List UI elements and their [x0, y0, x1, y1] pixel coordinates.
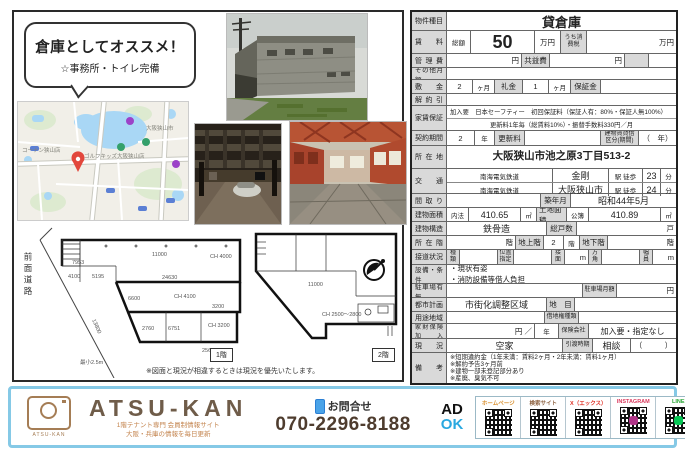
- shikikin-value: 2: [446, 80, 472, 93]
- row-label: 建物面積: [412, 208, 446, 221]
- table-row: 用途地域 借地権種類: [412, 311, 676, 323]
- hougaku-label: 方角: [588, 250, 601, 264]
- ad-label: AD: [441, 402, 463, 417]
- camera-icon: [27, 396, 71, 430]
- row-label: その他月額: [412, 68, 446, 79]
- svg-text:13800: 13800: [90, 318, 102, 334]
- property-type-value: 貸倉庫: [446, 12, 676, 30]
- bubble-subline: ☆事務所・トイレ完備: [61, 60, 160, 75]
- svg-text:11000: 11000: [152, 252, 167, 258]
- table-row: 交通 南海電気鉄道 金剛 駅 徒歩 23 分 南海電気鉄道 大阪狭山市 駅 徒歩…: [412, 168, 676, 193]
- recommend-bubble: 倉庫としてオススメ！ ☆事務所・トイレ完備: [24, 22, 196, 88]
- interior-photo-2f: [290, 122, 406, 224]
- setsubi-line2: ・消防設備等借人負担: [450, 274, 525, 283]
- row-label: 接道状況: [412, 250, 446, 264]
- kazai-unit: 円 ／: [446, 324, 534, 338]
- ad-ok-block: AD OK: [441, 402, 464, 432]
- bikou-line: ※短期違約金（1年未満：賃料2ヶ月・2年未満：賃料1ヶ月）: [450, 354, 620, 361]
- area-unit: ㎡: [520, 208, 536, 221]
- svg-text:5195: 5195: [92, 274, 104, 280]
- exterior-photo: [227, 14, 367, 120]
- ok-label: OK: [441, 417, 464, 432]
- brand-tagline-2: 大阪・兵庫の情報を毎日更新: [126, 431, 211, 439]
- floor-plans: 7953 11000 CH 4000 24630 4100 5195 6600 …: [16, 226, 402, 378]
- svg-text:CH 4100: CH 4100: [174, 294, 196, 300]
- map-label: コーナン狭山店: [22, 146, 61, 154]
- table-row: 設備・条件 ・現状有姿 ・消防設備等借人負担: [412, 264, 676, 283]
- floor-unit: 階: [563, 236, 579, 249]
- setsubi-line1: ・現状有姿: [450, 265, 488, 274]
- empty-cell: [601, 250, 639, 264]
- svg-text:7953: 7953: [72, 260, 84, 266]
- plan-note: ※図面と現況が相違するときは現況を優先いたします。: [146, 366, 319, 376]
- rent-amount: 50: [470, 31, 534, 53]
- svg-text:最小2.5m: 最小2.5m: [80, 358, 104, 366]
- svg-text:CH 3200: CH 3200: [208, 323, 230, 329]
- soukosu-unit: 戸: [576, 222, 676, 235]
- qr-label: INSTAGRAM: [617, 399, 650, 405]
- map-label: 大阪狭山市: [146, 124, 174, 132]
- parking-monthly-label: 駐車場月額: [582, 284, 616, 297]
- kyoueki-unit: 円: [549, 54, 624, 67]
- soukosu-label: 総戸数: [546, 222, 576, 235]
- qr-code: [485, 409, 512, 436]
- hikiwatashi-value: 相談: [592, 339, 630, 352]
- setsumen-label: 接面: [551, 250, 564, 264]
- svg-text:2760: 2760: [142, 326, 154, 332]
- shakuchi-label: 借地権種類: [544, 312, 578, 323]
- table-row: 賃料 総額 50 万円 うち消費税 万円: [412, 30, 676, 53]
- land-area-label: 土地面積: [536, 208, 566, 221]
- row-label: 管理費: [412, 54, 446, 67]
- table-row: 接道状況 種類 位置指定 接面 m 方角 幅員 m: [412, 249, 676, 264]
- row-label: 敷金: [412, 80, 446, 93]
- qr-code: [665, 407, 685, 434]
- row-label: 所在地: [412, 146, 446, 168]
- empty-cell: [446, 284, 582, 297]
- kubun-label: 建物賃貸借区分(期間): [600, 131, 638, 145]
- svg-text:24630: 24630: [162, 275, 177, 281]
- chijou-label: 地上階: [515, 236, 543, 249]
- flyer-page: 倉庫としてオススメ！ ☆事務所・トイレ完備: [0, 0, 685, 450]
- qr-item-x: X（エックス）: [565, 397, 610, 438]
- floor-unit: 階: [446, 236, 515, 249]
- chika-label: 地下階: [579, 236, 607, 249]
- table-row: 都市計画 市街化調整区域 地 目: [412, 297, 676, 311]
- hoshoukin-label: 保証金: [570, 80, 600, 93]
- brand-name: ATSU-KAN: [89, 395, 247, 422]
- row-label: 用途地域: [412, 312, 446, 323]
- row-label: 現況: [412, 339, 446, 352]
- table-row: 家賃保証 加入要 日本セーフティー 初回保証料（保証人有：80%・保証人無100…: [412, 105, 676, 130]
- keiyaku-value: 2: [446, 131, 474, 145]
- compass-icon: [364, 259, 385, 280]
- empty-cell: [459, 250, 497, 264]
- ichi-label: 位置指定: [497, 250, 513, 264]
- row-label: 家賃保証: [412, 106, 446, 130]
- brand-block: ATSU-KAN 1階テナント専門 会員制情報サイト 大阪・兵庫の情報を毎日更新: [89, 395, 247, 438]
- table-row: 敷金 2 ヶ月 礼金 1 ヶ月 保証金: [412, 79, 676, 93]
- empty-cell: [578, 312, 676, 323]
- empty-cell: [624, 54, 648, 67]
- row-label: 備考: [412, 353, 446, 383]
- svg-text:4100: 4100: [68, 274, 80, 280]
- property-table: 物件種目 貸倉庫 賃料 総額 50 万円 うち消費税 万円 管理費 円 共益費 …: [410, 10, 678, 385]
- m-unit: m: [652, 250, 676, 264]
- row-label: 設備・条件: [412, 265, 446, 283]
- left-panel: 倉庫としてオススメ！ ☆事務所・トイレ完備: [12, 10, 404, 382]
- table-row: 備考 ※短期違約金（1年未満：賃料2ヶ月・2年未満：賃料1ヶ月） ※解約予告3ヶ…: [412, 352, 676, 383]
- empty-cell: [446, 312, 544, 323]
- chijou-value: 2: [543, 236, 563, 249]
- line-icon: [674, 416, 683, 425]
- hikiwatashi-paren: （ ）: [630, 339, 676, 352]
- area-unit: ㎡: [660, 208, 676, 221]
- hoken-label: 保険会社: [558, 324, 588, 338]
- fukuin-label: 幅員: [639, 250, 652, 264]
- footer: ATSU-KAN ATSU-KAN 1階テナント専門 会員制情報サイト 大阪・兵…: [8, 386, 677, 448]
- walk-label: 駅 徒歩: [608, 169, 642, 182]
- row-label: 交通: [412, 169, 446, 193]
- chikunen-label: 築年月: [540, 194, 570, 207]
- row-label: 駐車場有無: [412, 284, 446, 297]
- bikou-line: ※産廃、臭気不可: [450, 375, 499, 382]
- map-label: ゴルフキッズ大阪狭山店: [84, 152, 145, 160]
- walk-min: 23: [642, 169, 660, 182]
- svg-text:CH 2500～2800: CH 2500～2800: [322, 312, 361, 318]
- empty-cell: [648, 54, 676, 67]
- qr-code: [530, 409, 557, 436]
- reikin-value: 1: [522, 80, 548, 93]
- kubun-value: （ 年）: [638, 131, 676, 145]
- hoken-value: 加入要・指定なし: [588, 324, 676, 338]
- row-label: 賃料: [412, 31, 446, 53]
- table-row: 現況 空家 引渡時期 相談 （ ）: [412, 338, 676, 352]
- kazai-year-unit: 年: [534, 324, 558, 338]
- row-label: 家財保険加入: [412, 324, 446, 338]
- empty-cell: [446, 68, 676, 79]
- structure-value: 鉄骨造: [446, 222, 546, 235]
- reikin-label: 礼金: [494, 80, 522, 93]
- location-map: コーナン狭山店 ゴルフキッズ大阪狭山店 大阪狭山市: [18, 102, 188, 220]
- chimoku-label: 地 目: [546, 298, 574, 311]
- bubble-headline: 倉庫としてオススメ！: [35, 36, 185, 57]
- hoshou-line1: 加入要 日本セーフティー 初回保証料（保証人有：80%・保証人無100%）: [447, 106, 676, 118]
- floor1-caption: 1階: [210, 348, 233, 362]
- m-unit: m: [564, 250, 588, 264]
- min-unit: 分: [660, 169, 676, 182]
- map-image: [18, 102, 188, 220]
- table-row: 駐車場有無 駐車場月額 円: [412, 283, 676, 297]
- land-area: 410.89: [588, 208, 660, 221]
- shikikin-unit: ヶ月: [472, 80, 494, 93]
- empty-cell: [600, 80, 676, 93]
- qr-panel: ホームページ 検索サイト X（エックス） INSTAGRAM LINE: [475, 396, 685, 439]
- row-label: 都市計画: [412, 298, 446, 311]
- qr-code: [575, 409, 602, 436]
- table-row: 所在地 大阪狭山市池之原3丁目513-2: [412, 145, 676, 168]
- brand-tagline-1: 1階テナント専門 会員制情報サイト: [117, 422, 220, 430]
- logo-caption: ATSU-KAN: [33, 432, 66, 438]
- qr-item-homepage: ホームページ: [476, 397, 520, 438]
- kyoueki-label: 共益費: [521, 54, 549, 67]
- table-row: 家財保険加入 円 ／ 年 保険会社 加入要・指定なし: [412, 323, 676, 338]
- rent-tax-label: うち消費税: [560, 31, 586, 53]
- station-name: 金剛: [552, 169, 608, 182]
- empty-cell: [446, 194, 540, 207]
- contact-label: お問合せ: [328, 398, 372, 414]
- address-value: 大阪狭山市池之原3丁目513-2: [446, 146, 676, 168]
- svg-text:6600: 6600: [128, 296, 140, 302]
- hikiwatashi-label: 引渡時期: [562, 339, 592, 352]
- table-row: 管理費 円 共益費 円: [412, 53, 676, 67]
- building-area: 410.65: [468, 208, 520, 221]
- qr-item-instagram: INSTAGRAM: [610, 397, 655, 438]
- rent-total-label: 総額: [446, 31, 470, 53]
- row-label: 物件種目: [412, 12, 446, 30]
- table-row: 物件種目 貸倉庫: [412, 12, 676, 30]
- empty-cell: [446, 94, 676, 105]
- parking-unit: 円: [616, 284, 676, 297]
- row-label: 建物構造: [412, 222, 446, 235]
- table-row: 間取り 築年月 昭和44年5月: [412, 193, 676, 207]
- floor-unit: 階: [607, 236, 676, 249]
- svg-text:3200: 3200: [212, 304, 224, 310]
- svg-text:CH 4000: CH 4000: [210, 254, 232, 260]
- instagram-icon: [629, 416, 638, 425]
- chikunen-value: 昭和44年5月: [570, 194, 676, 207]
- rent-tax-unit: 万円: [586, 31, 676, 53]
- hoshou-line2: 更新料1年毎（総賃料10%）・振替手数料330円／月: [447, 118, 676, 131]
- toshi-value: 市街化調整区域: [446, 298, 546, 311]
- rent-unit: 万円: [534, 31, 560, 53]
- qr-code: [620, 407, 647, 434]
- reikin-unit: ヶ月: [548, 80, 570, 93]
- qr-label: ホームページ: [482, 399, 515, 407]
- rail-company: 南海電気鉄道: [447, 169, 552, 182]
- qr-item-search: 検索サイト: [520, 397, 565, 438]
- contact-block: お問合せ 070-2296-8188: [275, 398, 410, 436]
- row-label: 間取り: [412, 194, 446, 207]
- table-row: 契約期間 2 年 更新料 建物賃貸借区分(期間) （ 年）: [412, 130, 676, 145]
- row-label: 契約期間: [412, 131, 446, 145]
- qr-item-line: LINE: [655, 397, 685, 438]
- empty-cell: [574, 298, 676, 311]
- svg-text:11000: 11000: [308, 282, 323, 288]
- genkyou-value: 空家: [446, 339, 562, 352]
- brand-logo: ATSU-KAN: [11, 396, 71, 438]
- qr-label: 検索サイト: [530, 399, 558, 407]
- phone-icon: [315, 399, 325, 414]
- uchinori-label: 内法: [446, 208, 468, 221]
- koushin-label: 更新料: [494, 131, 524, 145]
- row-label: 所在階: [412, 236, 446, 249]
- table-row: 建物構造 鉄骨造 総戸数 戸: [412, 221, 676, 235]
- table-row: 解約引: [412, 93, 676, 105]
- row-label: 解約引: [412, 94, 446, 105]
- empty-cell: [524, 131, 600, 145]
- table-row: 所在階 階 地上階 2 階 地下階 階: [412, 235, 676, 249]
- access-line: 南海電気鉄道 金剛 駅 徒歩 23 分: [447, 169, 676, 182]
- qr-label: LINE: [672, 399, 685, 405]
- table-row: その他月額: [412, 67, 676, 79]
- table-row: 建物面積 内法 410.65 ㎡ 土地面積 公簿 410.89 ㎡: [412, 207, 676, 221]
- phone-number: 070-2296-8188: [275, 414, 410, 436]
- kanrihi-unit: 円: [446, 54, 521, 67]
- bikou-line: ※解約予告3ヶ月前: [450, 361, 503, 368]
- interior-photo-1f: [195, 124, 281, 224]
- keiyaku-unit: 年: [474, 131, 494, 145]
- shurui-label: 種類: [446, 250, 459, 264]
- koubo-label: 公簿: [566, 208, 588, 221]
- floor2-caption: 2階: [372, 348, 395, 362]
- svg-text:6751: 6751: [168, 326, 180, 332]
- empty-cell: [513, 250, 551, 264]
- qr-label: X（エックス）: [570, 399, 607, 407]
